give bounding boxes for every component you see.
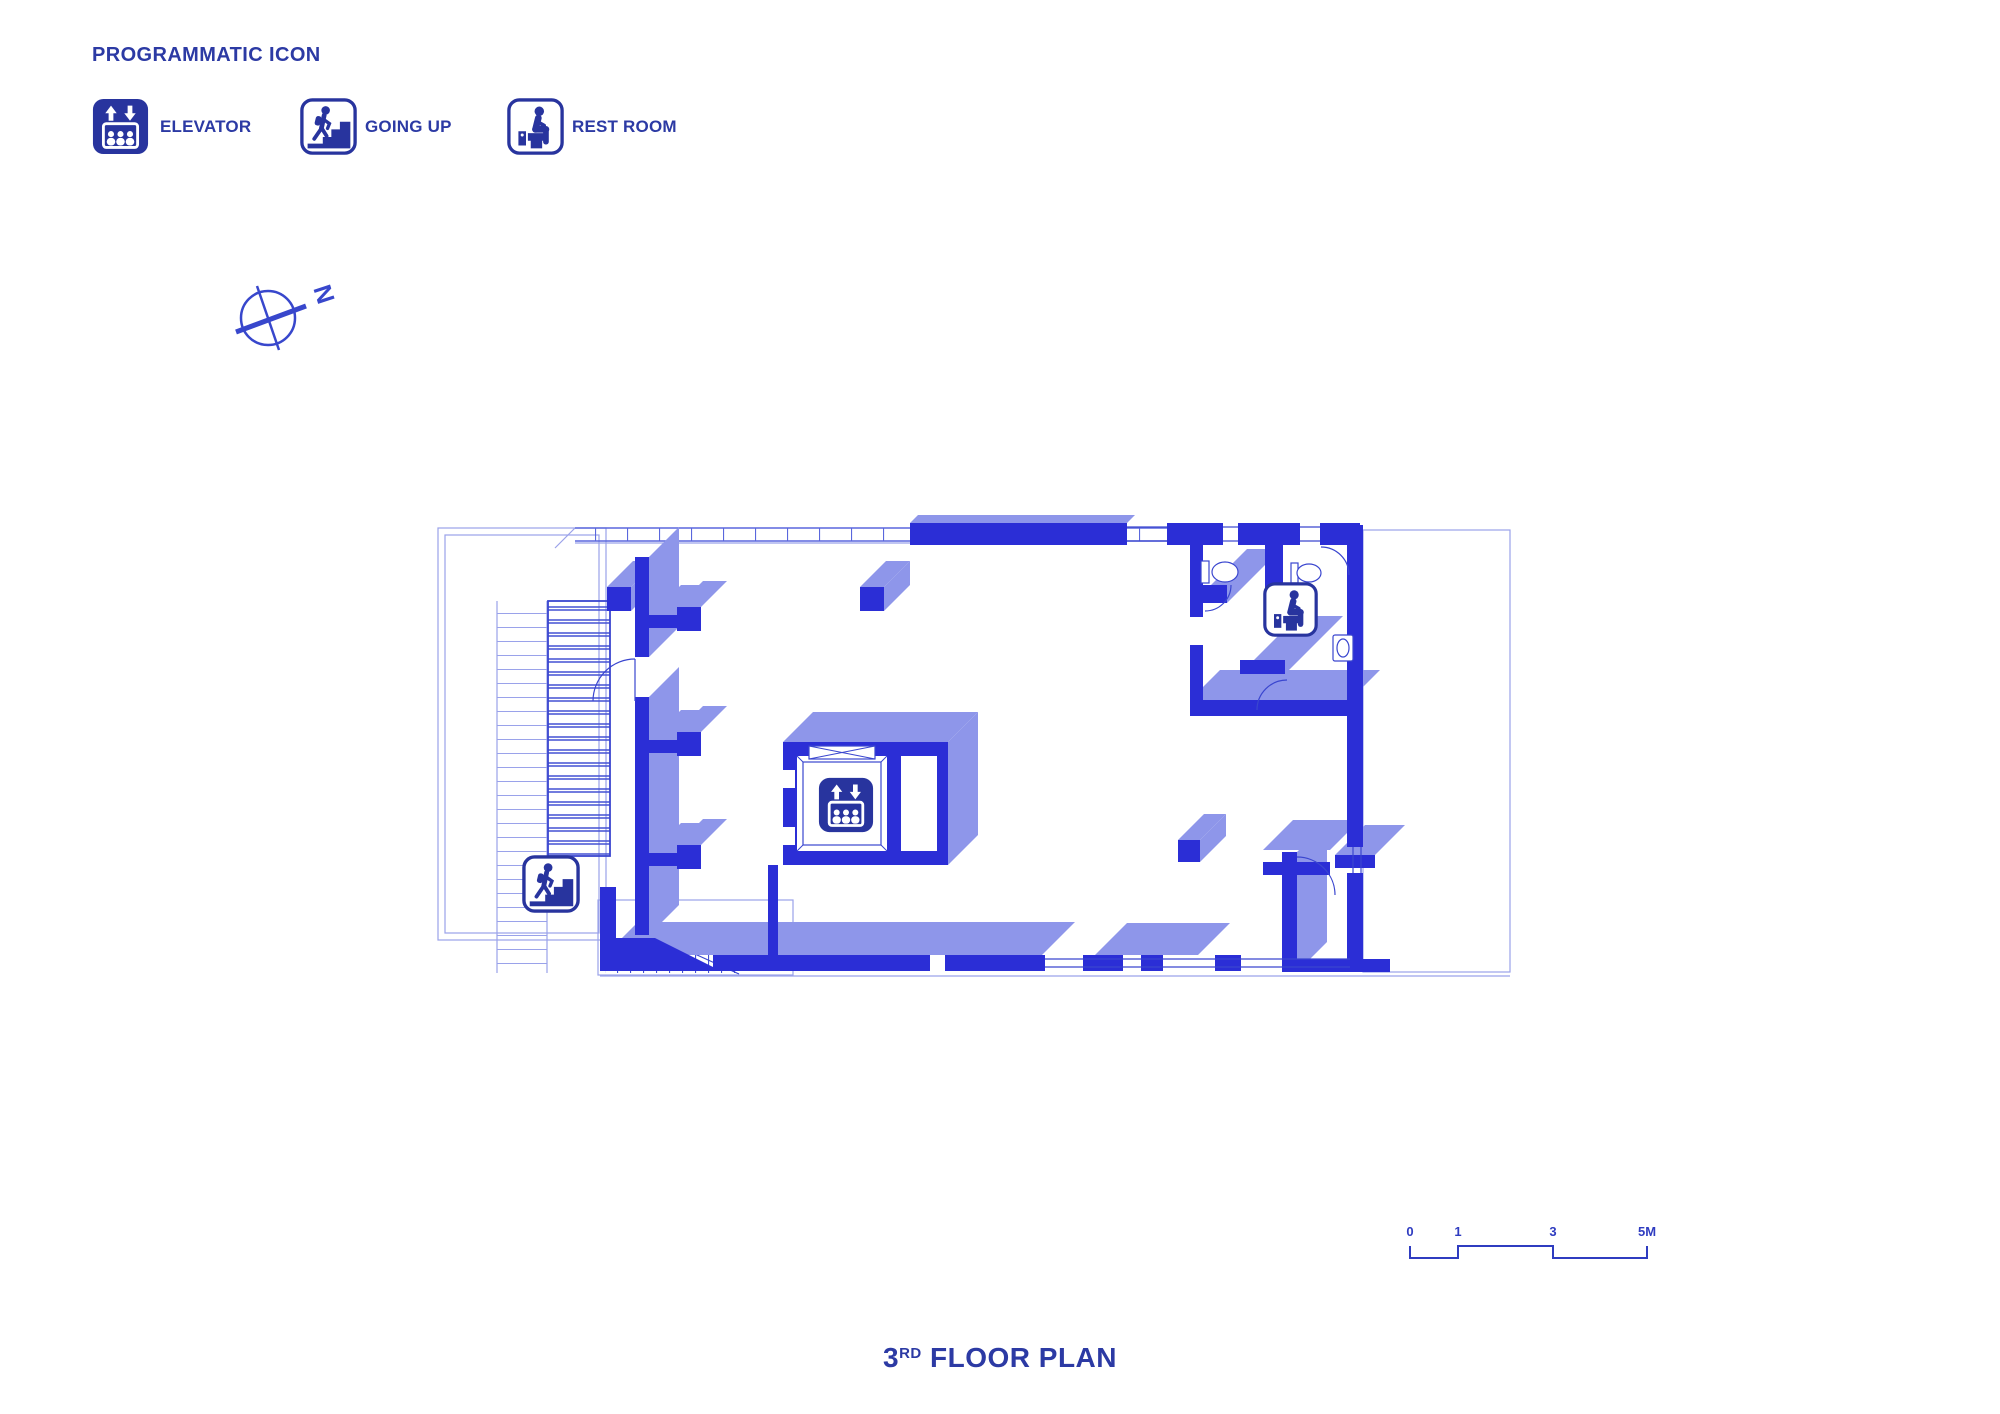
legend-label-going-up: GOING UP [365, 117, 452, 137]
stairs-up-icon [300, 98, 357, 155]
legend-label-elevator: ELEVATOR [160, 117, 251, 137]
scale-label-1: 1 [1454, 1224, 1461, 1239]
scale-bar: 0 1 3 5M [1400, 1220, 1660, 1270]
stair-treads-left [497, 601, 547, 973]
elevator-icon [819, 778, 873, 832]
title-number: 3 [883, 1342, 899, 1373]
stair-flight-main [548, 601, 610, 856]
scale-label-0: 0 [1406, 1224, 1413, 1239]
restroom-icon [1265, 584, 1316, 635]
scale-label-3: 3 [1549, 1224, 1556, 1239]
floor-plan-drawing [435, 515, 1515, 985]
sink-fixture [1333, 635, 1353, 661]
elevator-icon [92, 98, 149, 155]
restroom-icon [507, 98, 564, 155]
title-ordinal: RD [899, 1345, 922, 1362]
legend-label-rest-room: REST ROOM [572, 117, 677, 137]
page-title: 3RD FLOOR PLAN [0, 1342, 2000, 1374]
legend-title: PROGRAMMATIC ICON [92, 44, 321, 67]
title-rest: FLOOR PLAN [922, 1342, 1117, 1373]
stairs-up-icon [524, 857, 578, 911]
scale-label-5m: 5M [1638, 1224, 1656, 1239]
